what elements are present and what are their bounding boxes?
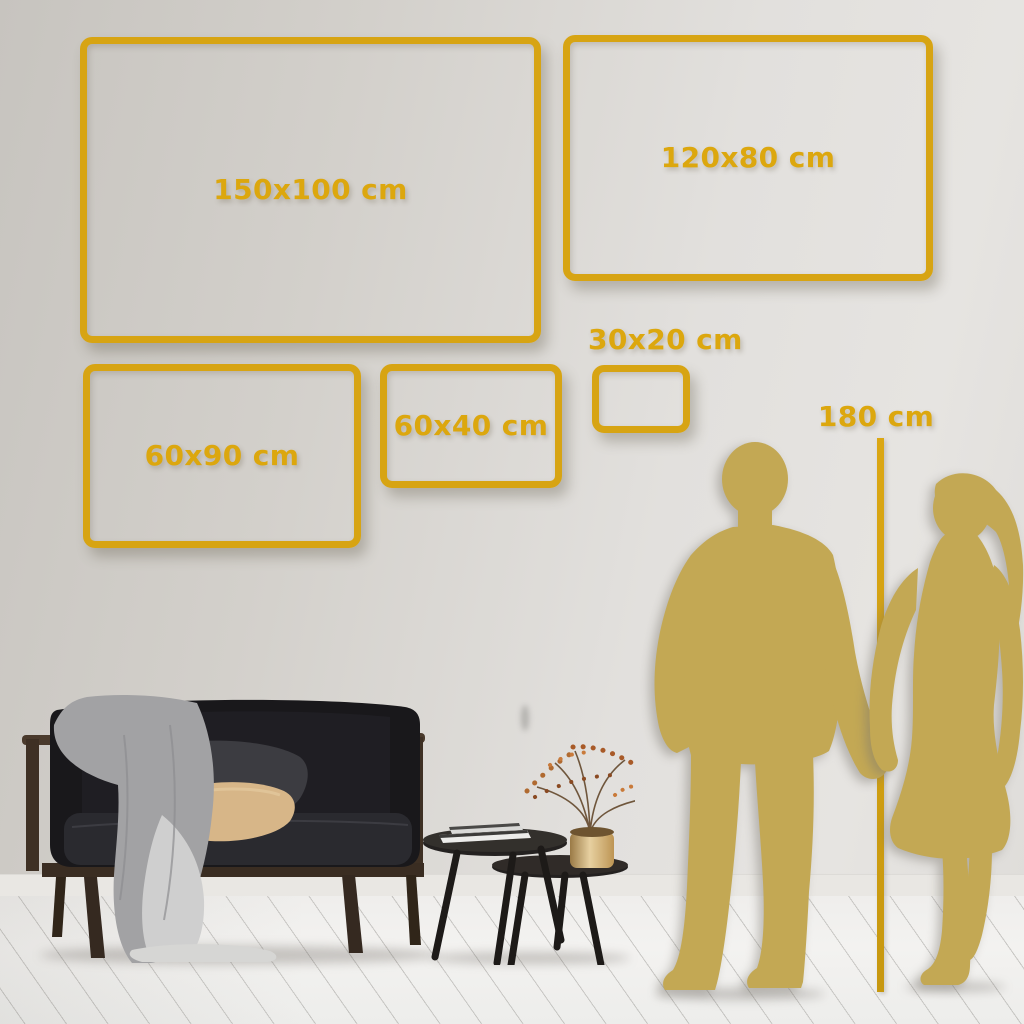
dried-branches — [527, 747, 635, 833]
woman-left-arm — [869, 568, 918, 772]
man-right-leg — [747, 755, 814, 988]
woman-back-leg — [968, 848, 992, 960]
size-frame-60x40: 60x40 cm — [380, 364, 562, 488]
size-label-60x90: 60x90 cm — [145, 442, 300, 470]
man-torso — [679, 525, 842, 764]
size-label-60x40: 60x40 cm — [394, 412, 549, 440]
size-guide-scene: 150x100 cm 120x80 cm 60x90 cm 60x40 cm 3… — [0, 0, 1024, 1024]
height-reference-label: 180 cm — [800, 403, 952, 431]
nesting-table-tall — [423, 828, 567, 963]
woman-front-leg — [921, 848, 971, 985]
vase — [570, 827, 614, 868]
size-label-150x100: 150x100 cm — [213, 176, 407, 204]
woman-silhouette — [858, 470, 1024, 992]
coffee-tables-illustration — [415, 735, 635, 965]
man-left-leg — [663, 755, 741, 990]
size-frame-60x90: 60x90 cm — [83, 364, 361, 548]
size-frame-120x80: 120x80 cm — [563, 35, 933, 281]
size-frame-150x100: 150x100 cm — [80, 37, 541, 343]
size-frame-30x20 — [592, 365, 690, 433]
size-label-120x80: 120x80 cm — [661, 144, 836, 172]
size-label-30x20: 30x20 cm — [588, 326, 743, 354]
